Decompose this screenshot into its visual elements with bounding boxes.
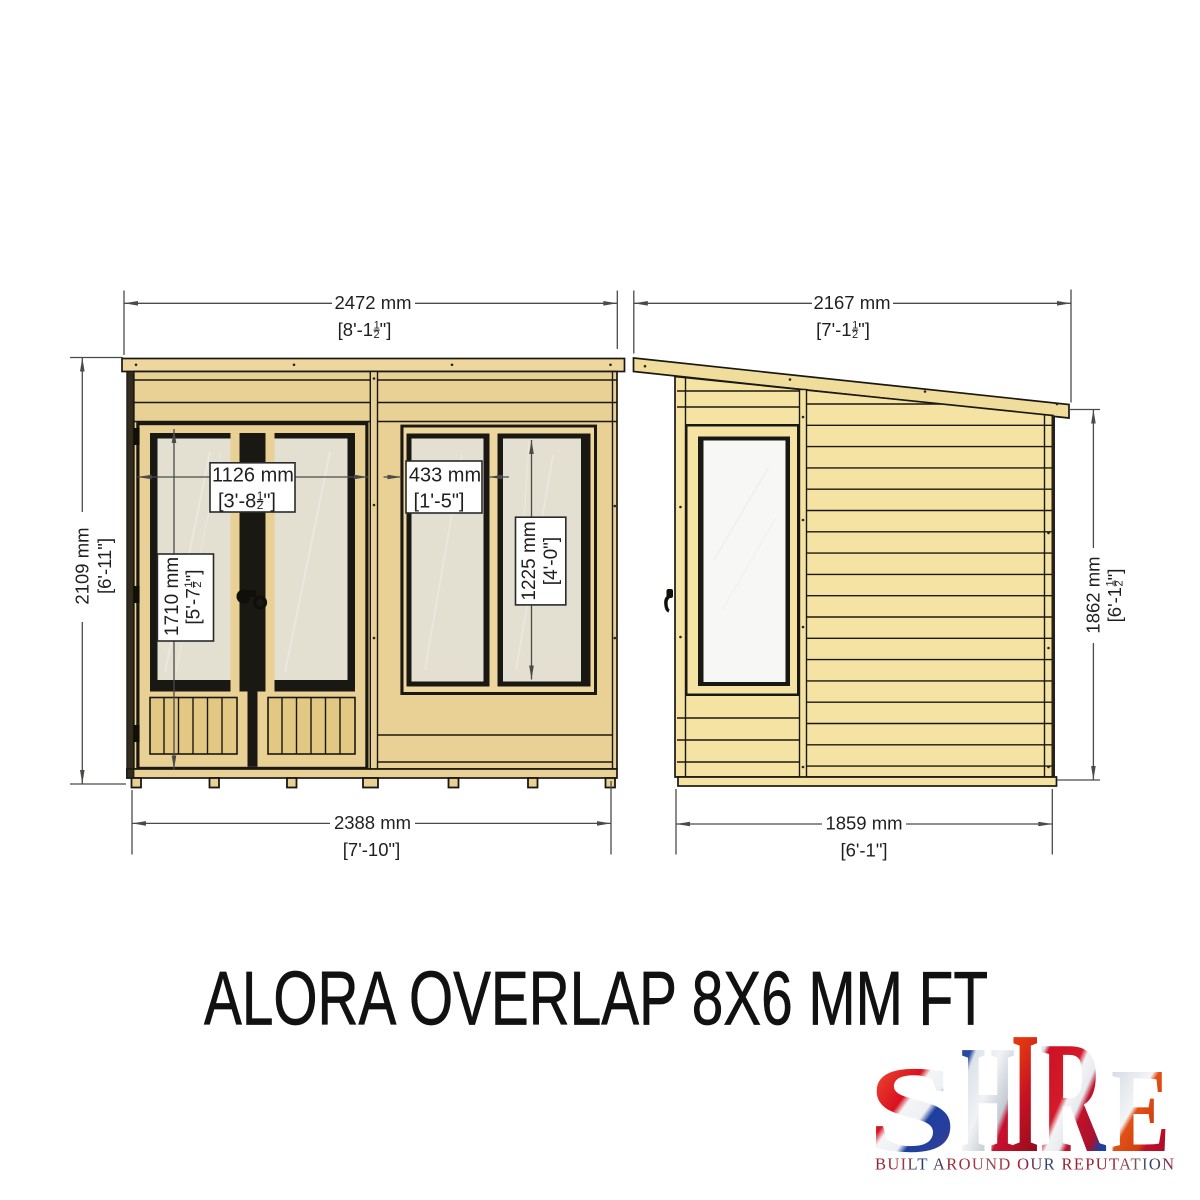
svg-text:1859 mm: 1859 mm: [825, 813, 902, 834]
svg-text:[3'-812"]: [3'-812"]: [218, 489, 276, 513]
svg-text:[8'-112"]: [8'-112"]: [338, 319, 392, 341]
svg-text:1710 mm: 1710 mm: [162, 557, 183, 636]
svg-text:[7'-112"]: [7'-112"]: [816, 319, 870, 341]
svg-text:1225 mm: 1225 mm: [519, 521, 540, 600]
svg-text:2388 mm: 2388 mm: [334, 812, 411, 833]
svg-text:433 mm: 433 mm: [409, 465, 481, 487]
svg-text:[5'-712"]: [5'-712"]: [183, 569, 205, 624]
svg-text:2472 mm: 2472 mm: [334, 292, 411, 313]
svg-text:2109 mm: 2109 mm: [72, 527, 93, 604]
svg-text:2167 mm: 2167 mm: [813, 292, 890, 313]
svg-text:[4'-0"]: [4'-0"]: [541, 537, 562, 585]
svg-text:1862 mm: 1862 mm: [1083, 556, 1104, 633]
svg-text:[6'-1"]: [6'-1"]: [840, 839, 887, 860]
svg-text:1126 mm: 1126 mm: [212, 465, 294, 487]
svg-text:BUILT AROUND OUR REPUTATION: BUILT AROUND OUR REPUTATION: [875, 1155, 1174, 1174]
svg-text:[7'-10"]: [7'-10"]: [343, 839, 400, 860]
svg-text:[1'-5"]: [1'-5"]: [414, 491, 465, 513]
svg-text:ALORA OVERLAP 8X6 MM FT: ALORA OVERLAP 8X6 MM FT: [204, 957, 988, 1042]
svg-text:[6'-112"]: [6'-112"]: [1104, 569, 1126, 623]
svg-text:[6'-11"]: [6'-11"]: [94, 538, 115, 594]
